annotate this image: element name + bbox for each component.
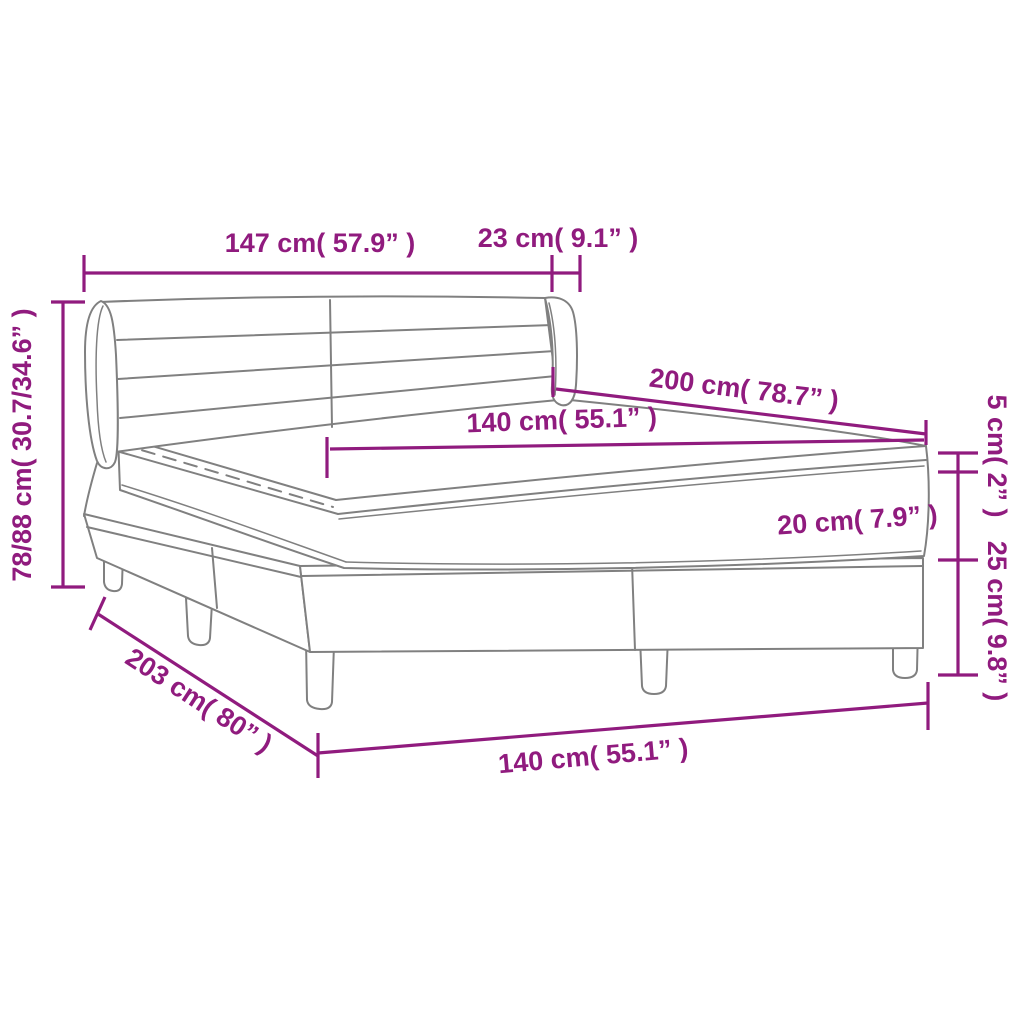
headboard-wing-depth-label: 23 cm( 9.1” )	[478, 223, 639, 253]
dim-headboard-width-line	[84, 255, 580, 292]
base-front-face	[300, 558, 923, 652]
base-back-corner-edge	[84, 463, 97, 516]
topper-thickness-label: 5 cm( 2” )	[982, 394, 1012, 517]
overall-length-label: 203 cm( 80” )	[120, 642, 277, 759]
dim-right-heights-line	[938, 452, 978, 675]
base-height-label: 25 cm( 9.8” )	[982, 541, 1012, 702]
bed-length-label: 200 cm( 78.7” )	[648, 363, 841, 416]
base-width-label: 140 cm( 55.1” )	[497, 733, 689, 779]
bed-line-art	[84, 296, 929, 709]
headboard-width-label: 147 cm( 57.9” )	[225, 228, 416, 258]
bed-dimension-diagram: 147 cm( 57.9” ) 23 cm( 9.1” ) 78/88 cm( …	[0, 0, 1024, 1024]
dim-overall-height-line	[51, 302, 85, 587]
overall-height-label: 78/88 cm( 30.7/34.6” )	[7, 308, 37, 581]
